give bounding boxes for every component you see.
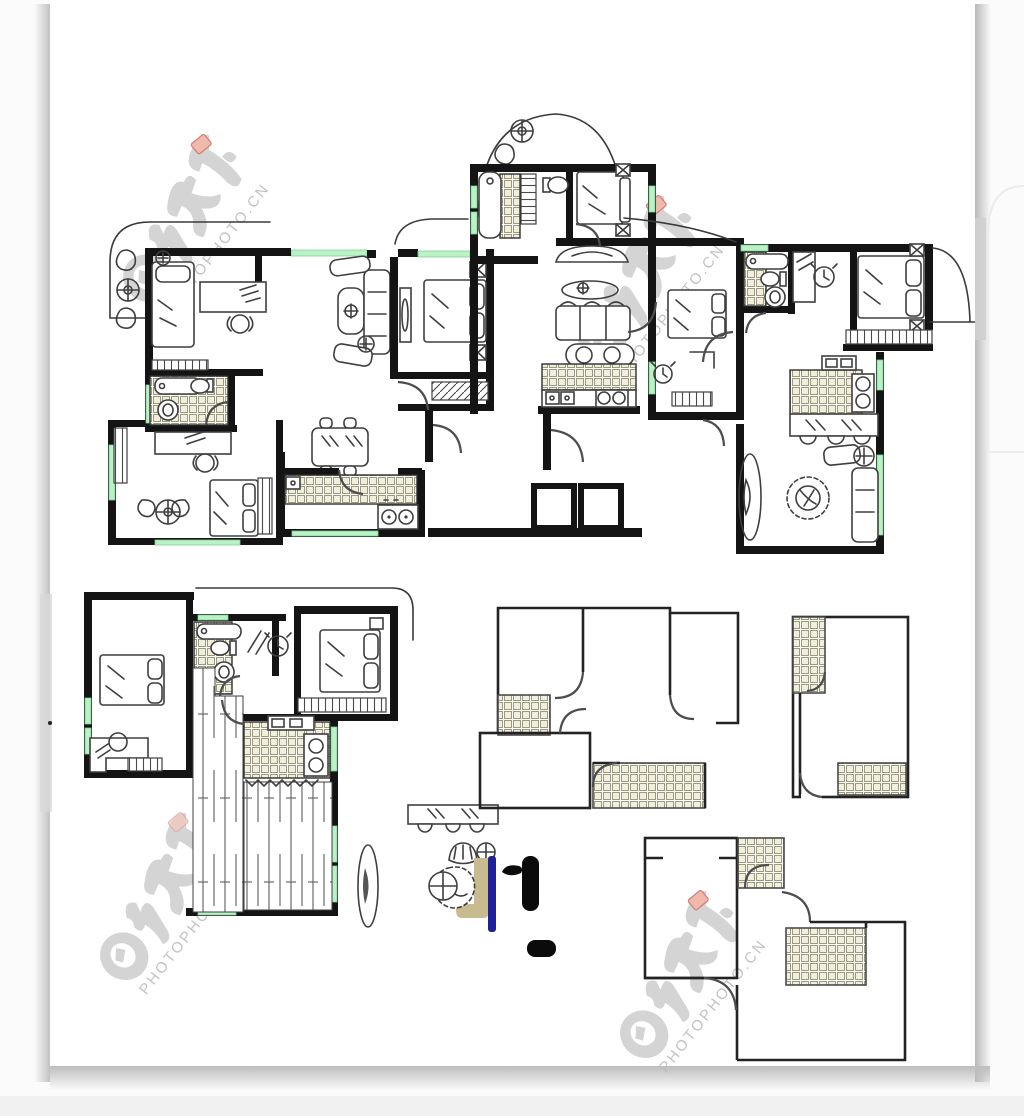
adjacent-arch-outline xyxy=(988,186,1024,452)
double-bed-icon xyxy=(210,480,258,536)
bookshelf-icon xyxy=(114,428,127,483)
stove-icon xyxy=(852,374,874,412)
double-bed-icon xyxy=(668,290,726,338)
window-green xyxy=(331,727,337,771)
toilet-icon xyxy=(761,272,786,286)
window-green xyxy=(292,531,378,536)
navy-board-icon xyxy=(488,856,496,932)
kitchen-tiles xyxy=(542,364,636,390)
desk-icon xyxy=(155,432,231,454)
shoe-cabinet-icon xyxy=(432,382,488,400)
side-table-icon xyxy=(854,446,874,466)
window-green xyxy=(471,186,477,208)
walls xyxy=(543,414,551,470)
elevator-shaft-icon xyxy=(534,486,574,528)
sofa-set-icon xyxy=(329,255,390,367)
tiled-floor xyxy=(793,617,825,693)
bar-table-icon xyxy=(790,414,878,444)
sheet-shadow-left xyxy=(34,4,50,1082)
wardrobe-icon xyxy=(620,178,630,222)
window-green xyxy=(85,698,91,724)
double-bed-icon xyxy=(100,655,164,705)
adjacent-thumbnail-left xyxy=(40,594,52,812)
wardrobe-icon xyxy=(846,330,932,344)
toilet-icon xyxy=(191,379,213,393)
armchair-icon xyxy=(823,444,861,466)
bottom-band xyxy=(0,1096,1024,1116)
window-green xyxy=(155,540,240,545)
sofa-icon xyxy=(852,468,878,542)
adjacent-thumbnail-right xyxy=(975,218,986,340)
desk-icon xyxy=(793,252,815,302)
spa-tub-icon xyxy=(566,344,634,366)
plank-floor xyxy=(244,782,332,910)
wardrobe-icon xyxy=(152,360,208,370)
desk-icon xyxy=(200,282,266,312)
sofa-icon xyxy=(556,302,630,340)
shoe-cabinet-icon xyxy=(672,392,712,406)
toilet-icon xyxy=(211,641,236,655)
sofa-icon xyxy=(364,270,390,354)
tiled-floor xyxy=(500,174,520,238)
floor-plan-sheet: PHOTOPHOTO.CN PHOTOPHOTO.CN PHOTOPHOTO.C… xyxy=(0,0,1024,1116)
window-green xyxy=(877,360,883,390)
toilet-icon xyxy=(543,177,568,193)
stray-dot xyxy=(48,721,52,725)
kitchen-counter-icon xyxy=(542,390,636,407)
washbasin-icon xyxy=(158,400,178,420)
tiled-floor xyxy=(498,695,550,735)
bathtub-icon xyxy=(479,172,501,238)
tiled-floor xyxy=(838,763,906,795)
wardrobe-icon xyxy=(128,758,162,771)
bathtub-icon xyxy=(197,624,241,639)
wardrobe-icon xyxy=(258,478,272,534)
tiled-floor xyxy=(593,763,705,808)
window-green xyxy=(471,212,477,234)
tiled-floor xyxy=(786,928,866,985)
sheet-shadow-bottom xyxy=(50,1066,990,1090)
double-bed-icon xyxy=(320,630,380,692)
stove-icon xyxy=(378,500,418,529)
black-bench-icon xyxy=(522,856,539,911)
dresser-icon xyxy=(400,288,411,342)
sink-icon xyxy=(822,356,856,370)
window-green xyxy=(741,245,768,251)
core-wall xyxy=(428,528,642,537)
window-green xyxy=(418,251,470,257)
stove-icon xyxy=(304,734,328,776)
sink-icon xyxy=(286,477,300,489)
window-green xyxy=(198,615,228,620)
single-bed-icon xyxy=(152,251,194,347)
bathtub-icon xyxy=(746,254,788,269)
wardrobe-icon xyxy=(298,698,386,712)
black-stool-icon xyxy=(527,940,556,957)
walls xyxy=(425,410,433,462)
elevator-shaft-icon xyxy=(581,486,621,528)
sink-icon xyxy=(268,716,314,730)
staircase-icon xyxy=(521,174,536,224)
window-green xyxy=(291,250,367,256)
plank-floor xyxy=(193,668,243,912)
washbasin-icon xyxy=(765,287,785,307)
double-bed-icon xyxy=(858,244,924,332)
window-green xyxy=(649,186,655,212)
nightstand-icon xyxy=(370,618,383,629)
sheet-shadow-right xyxy=(975,4,991,1082)
